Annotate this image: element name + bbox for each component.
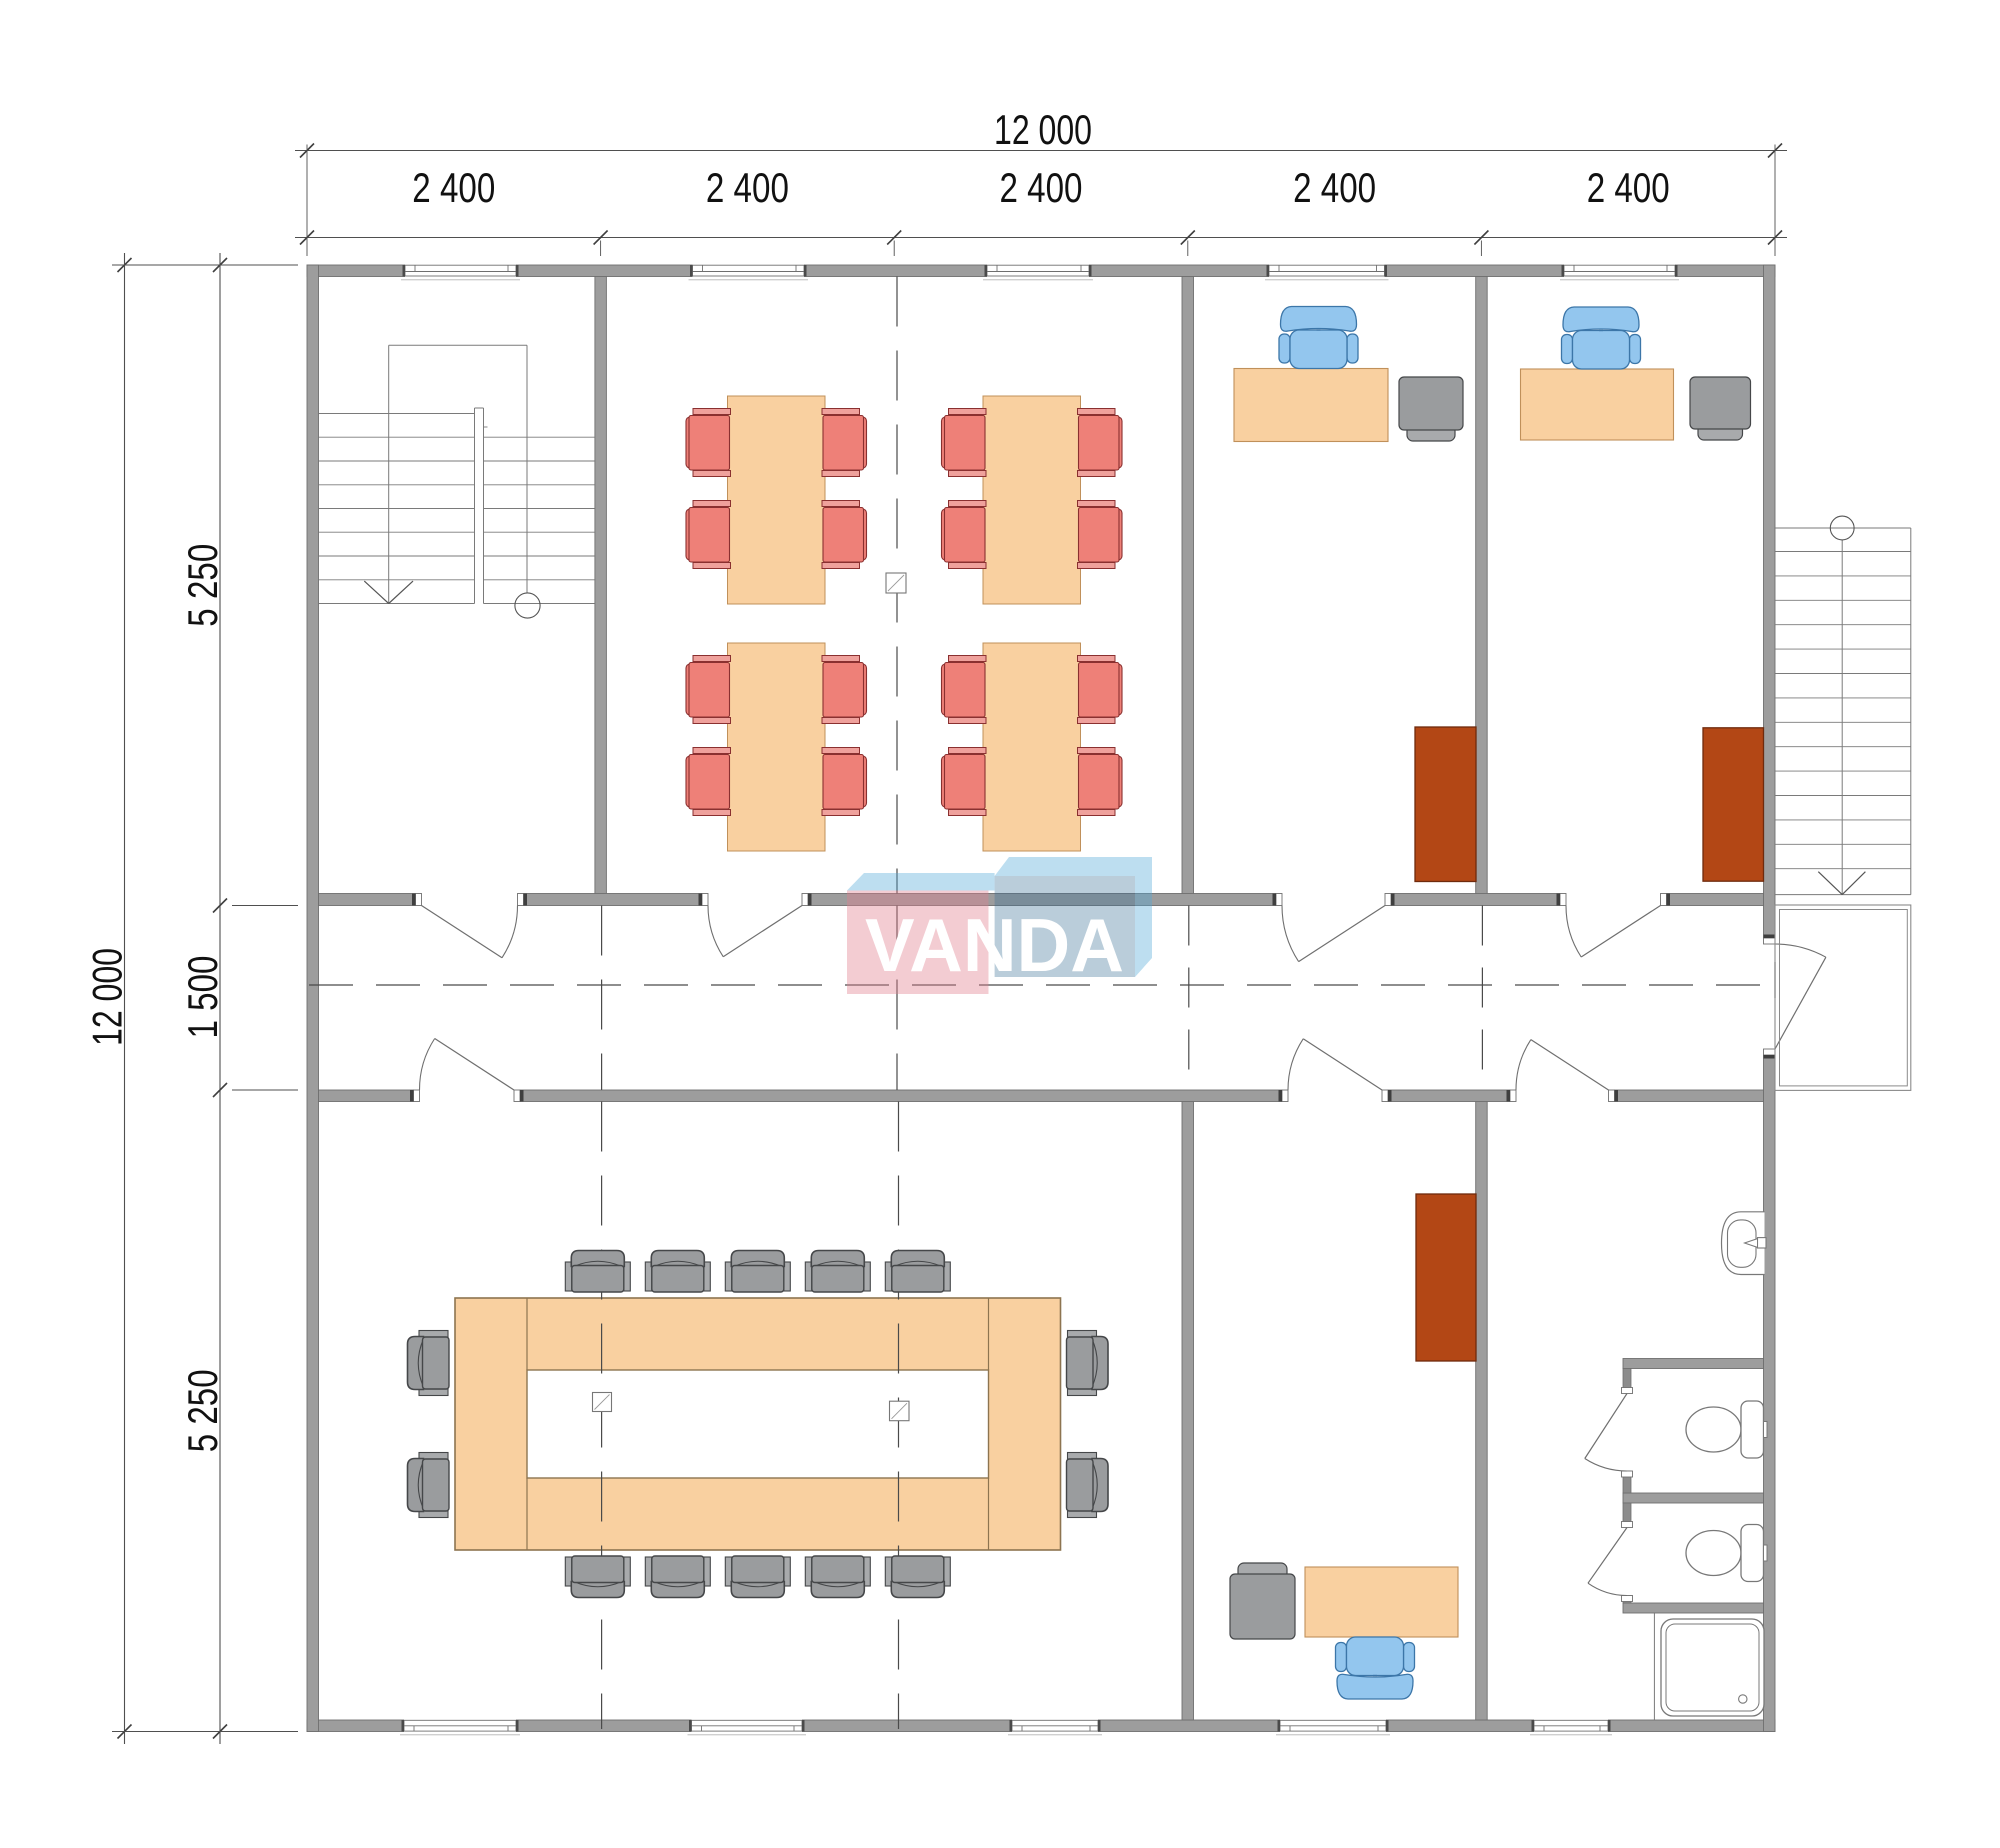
svg-text:2 400: 2 400 [1293,164,1376,211]
svg-text:5 250: 5 250 [179,1369,226,1452]
svg-text:2 400: 2 400 [412,164,495,211]
svg-text:1 500: 1 500 [179,956,226,1039]
svg-text:2 400: 2 400 [1000,164,1083,211]
svg-text:VANDA: VANDA [865,903,1124,987]
svg-text:5 250: 5 250 [179,544,226,627]
svg-text:2 400: 2 400 [706,164,789,211]
svg-text:12 000: 12 000 [84,948,131,1046]
svg-text:2 400: 2 400 [1587,164,1670,211]
svg-text:12 000: 12 000 [994,106,1092,153]
